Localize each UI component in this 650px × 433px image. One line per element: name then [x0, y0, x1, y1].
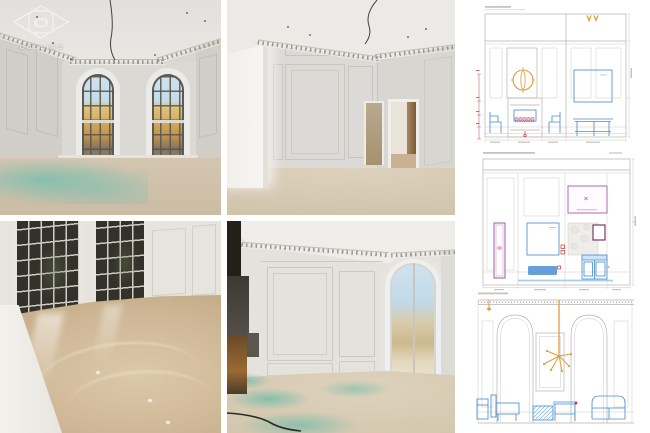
round-mirror — [511, 67, 535, 93]
bench-seat — [528, 266, 557, 275]
arched-opening-left — [497, 315, 533, 423]
socket-markers — [558, 245, 565, 269]
tall-window — [92, 221, 148, 309]
dark-frame — [227, 221, 241, 281]
arched-window — [149, 71, 187, 163]
side-table — [553, 402, 577, 421]
elevation-fireplace-wall — [476, 6, 634, 144]
artwork-frame — [574, 70, 612, 102]
dimension-line-right — [628, 14, 633, 137]
dimension-line-bottom — [485, 139, 626, 143]
joinery-left-edge — [477, 399, 488, 419]
photo-panelled-room-arched-window — [227, 221, 455, 433]
wall-panel — [482, 321, 493, 407]
large-wall-panel — [267, 267, 333, 361]
wall-panel — [6, 49, 28, 135]
wood-cabinet — [227, 336, 247, 394]
narrow-wall-panel — [273, 64, 283, 160]
tv-panel — [527, 223, 559, 255]
brand-wordmark: COLLINS — [12, 45, 70, 51]
fireplace-recess — [247, 333, 259, 357]
svg-text:C: C — [38, 17, 48, 32]
doorway — [388, 99, 419, 170]
project-collage-sheet: C C COLLINS — [0, 0, 650, 433]
maroon-frame — [593, 225, 605, 240]
ceiling-fixing-dots — [287, 26, 289, 28]
fireplace — [508, 98, 542, 137]
dimension-line-red — [476, 70, 481, 139]
wall-panel — [339, 271, 375, 357]
drinks-cabinet — [582, 255, 609, 279]
brand-logo: C C COLLINS — [12, 5, 70, 51]
brand-monogram-icon: C C — [12, 5, 70, 39]
narrow-opening — [364, 101, 384, 165]
hanging-wire — [98, 0, 128, 62]
sofa — [592, 396, 625, 419]
elevation-arched-wall — [476, 291, 646, 433]
wall-panel — [199, 54, 217, 138]
arched-opening-right — [571, 315, 607, 423]
wall-panel — [614, 321, 628, 407]
sputnik-chandelier — [543, 300, 572, 372]
elevation-joinery-wall — [476, 148, 640, 292]
wall-panel — [152, 228, 186, 296]
photo-panelled-corner-doorway — [227, 0, 455, 215]
wall-panels — [490, 48, 621, 98]
wall-panel — [36, 45, 58, 137]
panel-rail — [261, 261, 383, 262]
armchair-right — [549, 112, 560, 133]
wall-panel — [524, 178, 559, 216]
photo-wet-screed-floor — [0, 221, 221, 433]
armchair-left — [490, 112, 501, 133]
hatched-pouf — [533, 406, 553, 420]
tall-mirror — [494, 223, 505, 278]
pendant-markers — [587, 16, 598, 21]
right-wall — [196, 38, 221, 160]
dimension-line-right — [632, 159, 637, 285]
arched-window — [79, 71, 117, 163]
wall-panel — [424, 56, 452, 166]
artwork-frame — [568, 186, 607, 213]
wall-panel — [192, 224, 216, 296]
chaise — [491, 395, 519, 421]
equipment-panel — [227, 276, 249, 338]
teal-adhesive-patch — [0, 160, 148, 204]
floor-cable — [227, 407, 307, 433]
hanging-wire — [347, 0, 387, 50]
dimension-line-bottom — [483, 286, 630, 290]
large-wall-panel — [285, 64, 345, 160]
light-glints — [148, 399, 152, 402]
